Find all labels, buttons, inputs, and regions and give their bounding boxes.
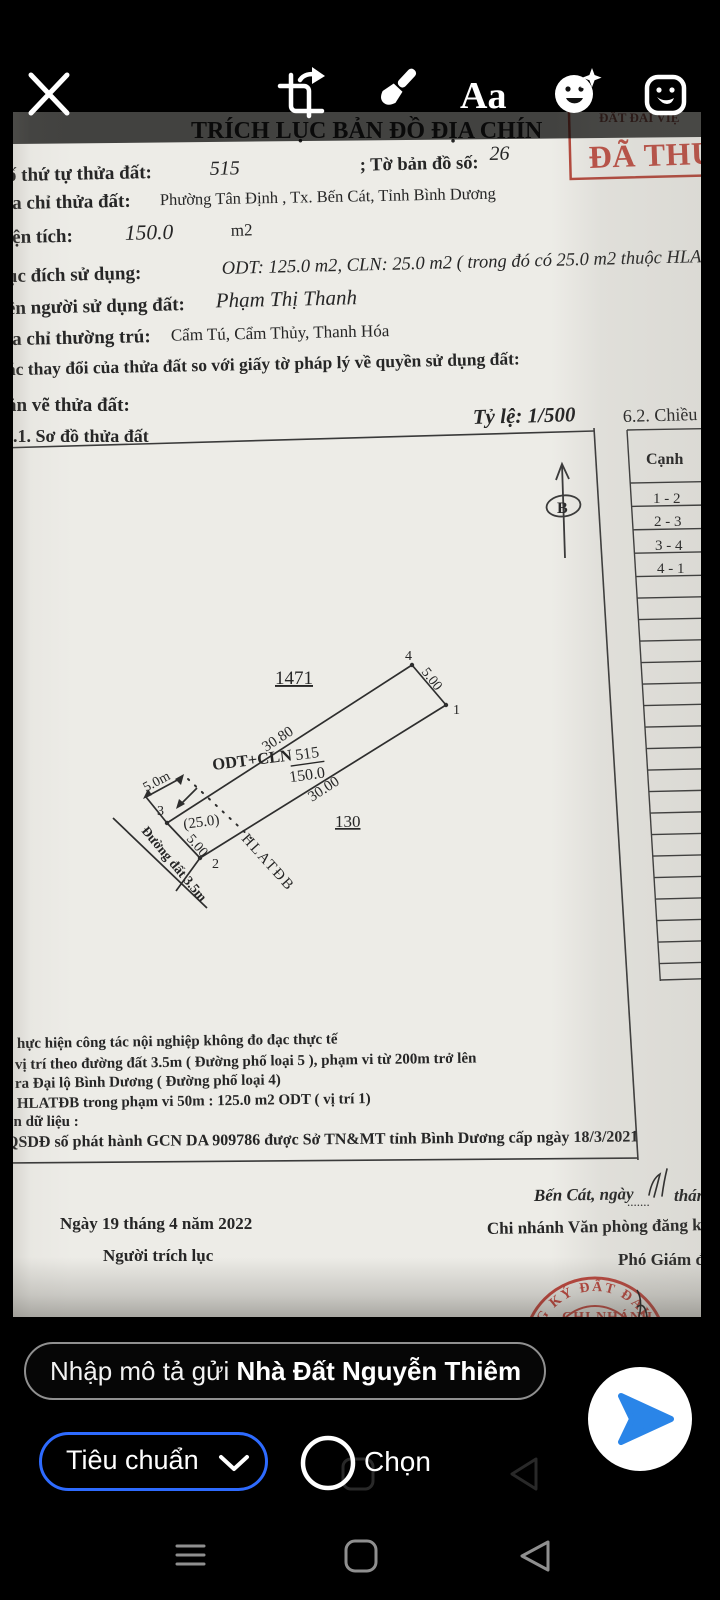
svg-text:Phó Giám đ: Phó Giám đ xyxy=(618,1250,701,1269)
svg-text:ồn dữ liệu :: ồn dữ liệu : xyxy=(13,1114,79,1130)
svg-text:ên người sử dụng đất:: ên người sử dụng đất: xyxy=(13,294,185,319)
svg-text:ản vẽ thửa đất:: ản vẽ thửa đất: xyxy=(13,395,130,416)
svg-text:6.2. Chiều: 6.2. Chiều xyxy=(623,404,698,426)
svg-text:ịa chỉ thửa đất:: ịa chỉ thửa đất: xyxy=(13,191,131,214)
svg-text:130: 130 xyxy=(335,812,361,831)
svg-text:4: 4 xyxy=(405,649,412,664)
svg-text:Aa: Aa xyxy=(460,75,506,117)
svg-text:Cạnh: Cạnh xyxy=(646,451,683,468)
svg-text:1: 1 xyxy=(453,703,460,718)
svg-text:2: 2 xyxy=(212,857,219,872)
svg-text:4 - 1: 4 - 1 xyxy=(657,561,685,577)
svg-text:26: 26 xyxy=(489,143,509,165)
svg-text:.......: ....... xyxy=(627,1194,650,1209)
svg-text:B: B xyxy=(557,500,568,517)
svg-text:515: 515 xyxy=(210,157,240,180)
svg-text:Người trích lục: Người trích lục xyxy=(103,1246,214,1265)
svg-text:3 - 4: 3 - 4 xyxy=(655,538,683,554)
svg-text:ục đích sử dụng:: ục đích sử dụng: xyxy=(13,263,142,287)
svg-text:2 - 3: 2 - 3 xyxy=(654,514,682,530)
svg-text:3: 3 xyxy=(157,804,164,819)
svg-text:Phạm Thị Thanh: Phạm Thị Thanh xyxy=(214,285,357,312)
svg-text:ĐÃ THU: ĐÃ THU xyxy=(588,135,701,175)
svg-text:1 - 2: 1 - 2 xyxy=(653,491,681,507)
svg-text:150.0: 150.0 xyxy=(125,220,174,245)
svg-text:iện tích:: iện tích: xyxy=(13,226,73,248)
svg-text:1471: 1471 xyxy=(275,668,313,689)
svg-text:Tỷ lệ: 1/500: Tỷ lệ: 1/500 xyxy=(472,402,576,429)
svg-text:ịa chỉ thường trú:: ịa chỉ thường trú: xyxy=(13,326,151,350)
svg-text:6.1. Sơ đồ thửa đất: 6.1. Sơ đồ thửa đất xyxy=(13,426,149,446)
svg-text:m2: m2 xyxy=(231,220,253,239)
svg-text:515: 515 xyxy=(294,744,320,764)
svg-text:Chi nhánh Văn phòng đăng k: Chi nhánh Văn phòng đăng k xyxy=(487,1215,701,1238)
svg-text:Ngày 19 tháng 4 năm 2022: Ngày 19 tháng 4 năm 2022 xyxy=(60,1214,252,1233)
svg-text:thán: thán xyxy=(674,1186,701,1205)
svg-text:; Tờ bản đồ số:: ; Tờ bản đồ số: xyxy=(360,153,479,175)
svg-text:ố thứ tự thửa đất:: ố thứ tự thửa đất: xyxy=(13,162,152,186)
svg-text:Bến Cát, ngày: Bến Cát, ngày xyxy=(533,1184,634,1205)
